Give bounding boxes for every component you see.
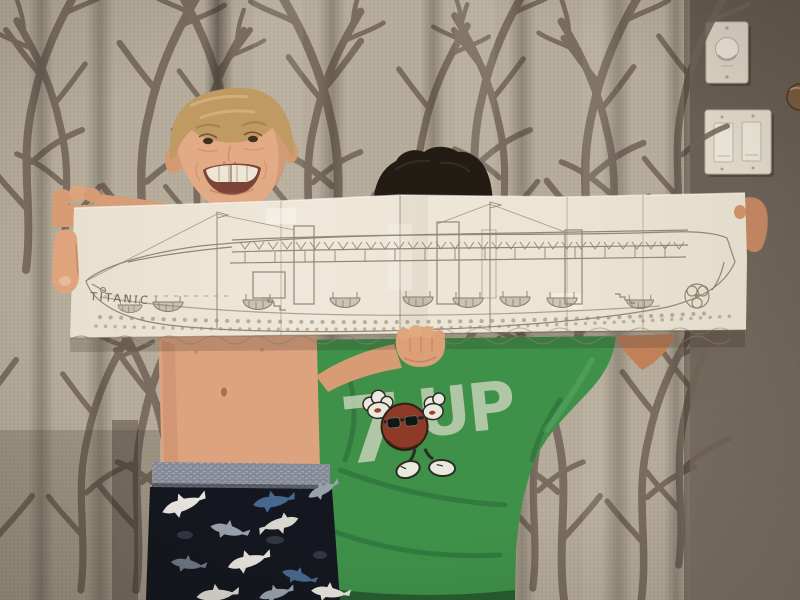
photo-two-kids-titanic-drawing: 7 UP <box>0 0 800 600</box>
vignette-overlay <box>0 0 800 600</box>
scene-canvas: 7 UP <box>0 0 800 600</box>
